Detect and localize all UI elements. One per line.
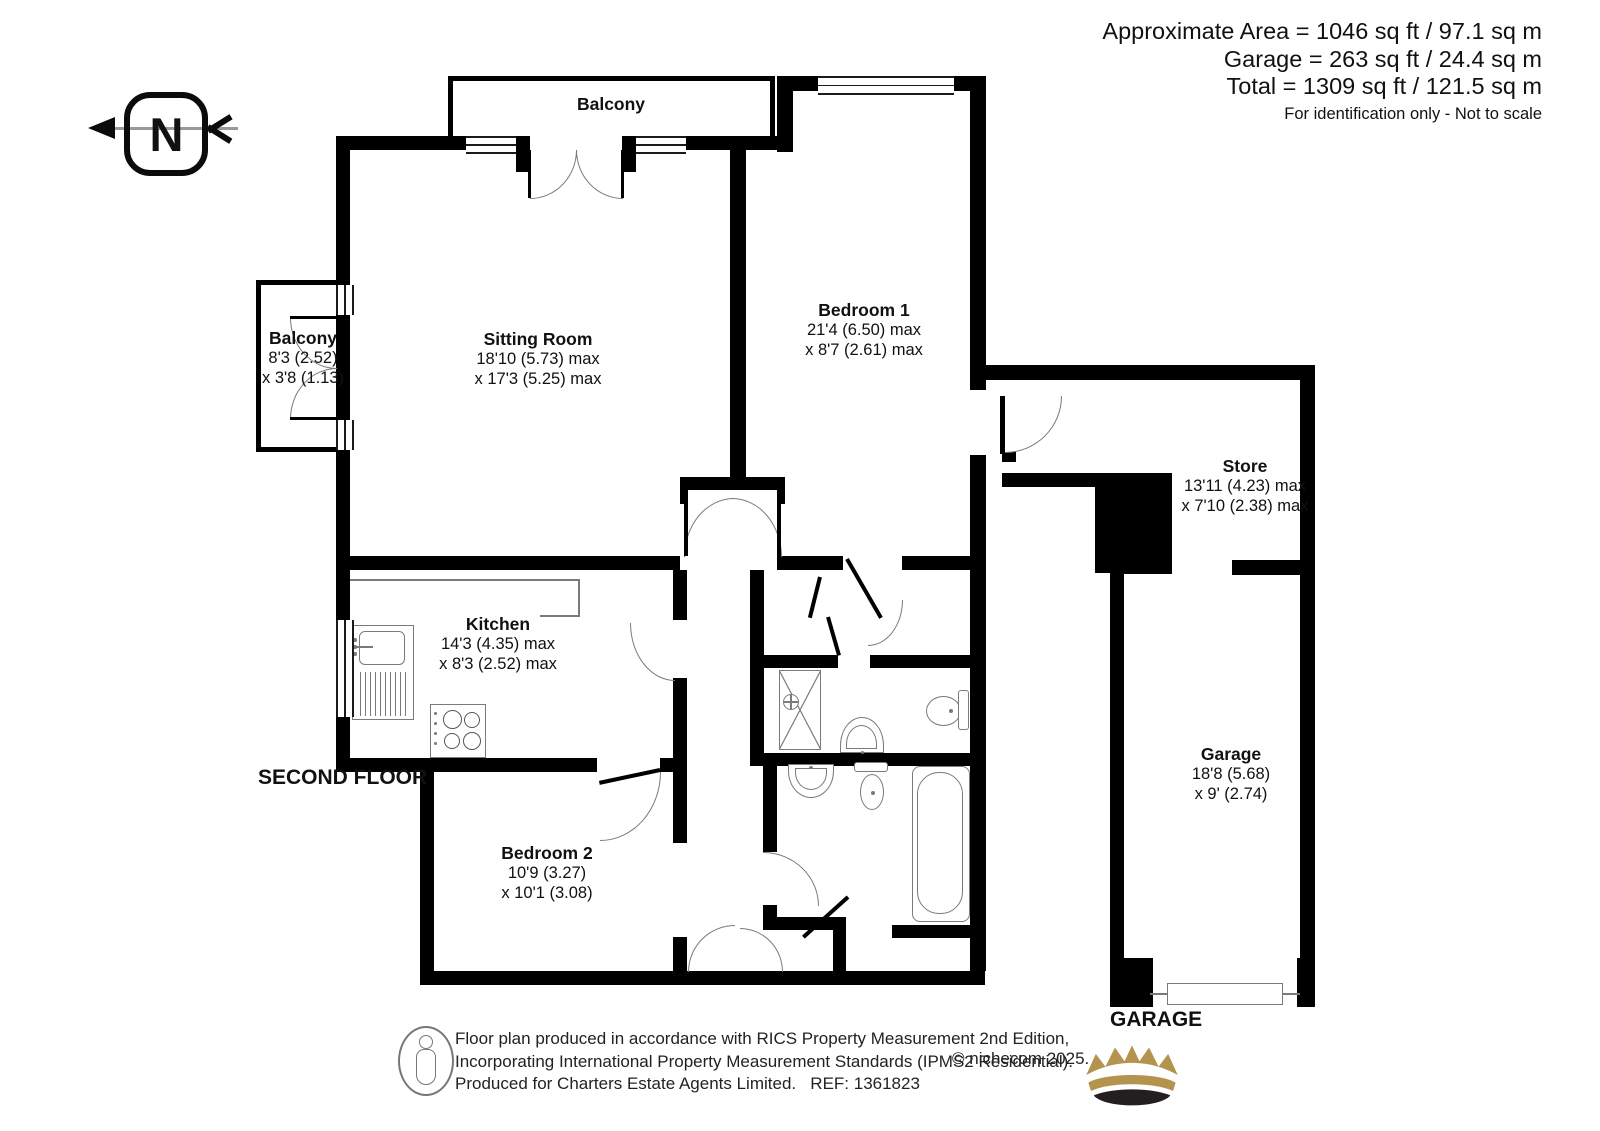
room-label-store: Store 13'11 (4.23) max x 7'10 (2.38) max — [1182, 456, 1309, 516]
garage-door — [1167, 983, 1283, 1005]
door-arc — [576, 150, 623, 199]
wall-segment — [420, 971, 985, 985]
wall-segment — [1110, 550, 1124, 990]
bathroom-basin-icon — [788, 764, 834, 798]
room-label-kitchen: Kitchen 14'3 (4.35) max x 8'3 (2.52) max — [439, 614, 557, 674]
copyright: © nichecom 2025. — [952, 1049, 1089, 1069]
door-leaf — [290, 417, 336, 420]
hob-icon — [430, 704, 486, 758]
wall-segment — [336, 556, 680, 570]
room-label-sitting-room: Sitting Room 18'10 (5.73) max x 17'3 (5.… — [475, 329, 602, 389]
wall-segment — [673, 678, 687, 758]
wall-segment — [420, 758, 434, 985]
wall-segment — [777, 76, 822, 91]
window — [336, 285, 354, 315]
wall-segment — [622, 136, 636, 172]
crown-base — [1094, 1089, 1171, 1105]
person-icon — [398, 1026, 454, 1096]
door-leaf — [826, 616, 841, 656]
door-leaf — [290, 316, 336, 319]
shower-drain-icon — [783, 694, 799, 710]
wall-segment — [763, 655, 838, 668]
wall-segment — [1110, 958, 1153, 1007]
wall-segment — [777, 556, 843, 570]
wall-segment — [750, 570, 764, 766]
door-arc — [630, 623, 675, 681]
floor-plan: Approximate Area = 1046 sq ft / 97.1 sq … — [0, 0, 1600, 1131]
wall-segment — [673, 937, 687, 971]
footer-line1: Floor plan produced in accordance with R… — [455, 1028, 1073, 1051]
ensuite-cistern-icon — [958, 690, 969, 730]
door-arc — [732, 498, 782, 557]
door-leaf — [777, 498, 781, 556]
bathroom-cistern-icon — [854, 762, 888, 772]
footer-line3: Produced for Charters Estate Agents Limi… — [455, 1073, 1073, 1096]
counter-line — [350, 579, 580, 581]
wall-segment — [680, 477, 785, 490]
drainer-icon — [360, 672, 408, 716]
shower-tray-icon — [779, 670, 821, 750]
door-leaf — [528, 150, 531, 198]
wall-segment — [336, 136, 466, 150]
wall-segment — [673, 570, 687, 620]
door-leaf — [808, 577, 822, 619]
tap-icon — [355, 646, 373, 648]
garage-door-link — [1283, 993, 1300, 995]
door-arc — [740, 928, 783, 972]
approximate-area: Approximate Area = 1046 sq ft / 97.1 sq … — [1102, 18, 1542, 46]
window — [336, 620, 354, 717]
room-label-balcony-left: Balcony 8'3 (2.52) x 3'8 (1.13) — [262, 328, 344, 388]
crown-band — [1088, 1075, 1175, 1091]
door-arc — [688, 925, 735, 972]
window — [336, 420, 354, 450]
door-leaf — [621, 150, 624, 198]
kitchen-sink-icon — [352, 625, 414, 720]
garage-caption: GARAGE — [1110, 1008, 1202, 1032]
door-arc — [1005, 396, 1062, 453]
window — [636, 136, 686, 154]
crown-logo — [1078, 1040, 1186, 1106]
door-arc — [763, 852, 819, 906]
garage-area: Garage = 263 sq ft / 24.4 sq m — [1102, 46, 1542, 74]
total-area: Total = 1309 sq ft / 121.5 sq m — [1102, 73, 1542, 101]
room-label-balcony-top: Balcony — [577, 94, 645, 114]
door-leaf — [684, 498, 688, 556]
wall-segment — [1232, 560, 1315, 575]
window — [466, 136, 516, 154]
room-label-garage: Garage 18'8 (5.68) x 9' (2.74) — [1192, 744, 1270, 804]
scale-disclaimer: For identification only - Not to scale — [1102, 105, 1542, 124]
wall-segment — [970, 76, 986, 390]
wall-segment — [763, 766, 777, 852]
counter-line — [578, 579, 580, 617]
wall-segment — [892, 925, 970, 938]
bath-icon — [912, 766, 970, 922]
floor-title: SECOND FLOOR — [258, 766, 427, 790]
wall-segment — [870, 655, 970, 668]
room-label-bedroom1: Bedroom 1 21'4 (6.50) max x 8'7 (2.61) m… — [805, 300, 923, 360]
wall-segment — [763, 905, 777, 917]
door-arc — [868, 600, 903, 646]
compass-north-label: N — [124, 92, 209, 177]
wall-segment — [673, 758, 687, 843]
room-label-bedroom2: Bedroom 2 10'9 (3.27) x 10'1 (3.08) — [501, 843, 592, 903]
area-summary: Approximate Area = 1046 sq ft / 97.1 sq … — [1102, 18, 1542, 124]
ensuite-toilet-icon — [926, 696, 961, 726]
door-arc — [684, 498, 734, 557]
wall-segment — [833, 917, 846, 971]
door-arc — [530, 150, 577, 199]
window — [818, 76, 954, 95]
wall-segment — [730, 150, 746, 477]
ensuite-basin-icon — [840, 717, 884, 753]
compass-arrowhead-icon — [88, 117, 115, 139]
wall-segment — [902, 556, 970, 570]
bathroom-toilet-icon — [860, 774, 884, 810]
sink-bowl-icon — [359, 631, 405, 665]
wall-segment — [1297, 958, 1315, 1007]
wall-segment — [970, 455, 986, 971]
crown-peaks — [1086, 1045, 1178, 1075]
garage-door-link — [1150, 993, 1167, 995]
door-leaf — [1000, 396, 1005, 454]
wall-segment — [986, 365, 1315, 380]
